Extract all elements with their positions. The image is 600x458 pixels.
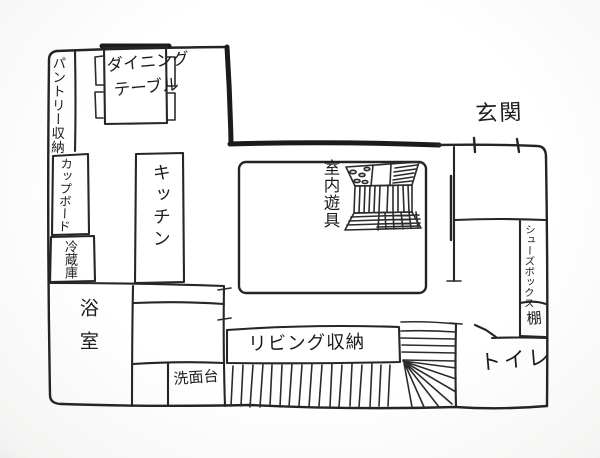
floorplan-linework — [0, 0, 600, 458]
toilet-door-swing-icon — [475, 325, 496, 337]
climb-hold — [350, 170, 356, 173]
label-bathroom: 浴室 — [76, 298, 98, 364]
washroom-walls — [132, 286, 231, 406]
label-washstand: 洗面台 — [173, 368, 219, 388]
play-mid-bars — [359, 185, 409, 213]
chair-right-2 — [167, 93, 175, 120]
washstand-top-line — [133, 362, 224, 364]
bathroom-right-wall — [132, 286, 133, 406]
label-indoor-play: 室内遊具 — [320, 159, 339, 229]
label-entrance: 玄関 — [475, 100, 524, 127]
wall-bottom — [62, 404, 547, 408]
entrance-door-tick-left — [474, 138, 475, 152]
washroom-counter-line — [134, 302, 224, 304]
label-cupboard: カップボード — [55, 157, 72, 232]
label-pantry: パントリー収納 — [47, 56, 64, 154]
entrance-door-tick-right — [517, 139, 519, 152]
wall-top-entrance — [436, 145, 546, 157]
genkan-floor-line — [455, 219, 546, 220]
floor-plan: パントリー収納 ダイニング テーブル カップボード 冷蔵庫 キッチン 室内遊具 … — [0, 0, 600, 458]
climb-hold — [354, 179, 360, 182]
stairs-turn-top — [401, 322, 456, 324]
climb-hold — [362, 181, 368, 184]
play-bottom-left-lines — [347, 216, 379, 225]
label-fridge: 冷蔵庫 — [61, 240, 76, 279]
stairs-winder-fan — [403, 361, 456, 407]
chair-left-1 — [95, 56, 103, 85]
stairs-lower-treads — [231, 364, 390, 407]
toilet-left-wall — [456, 324, 457, 407]
climb-hold — [359, 173, 365, 176]
play-top-dividers — [371, 164, 391, 186]
label-shoe-box: シューズボックス — [523, 224, 537, 308]
door-tick-washroom-bottom — [218, 318, 231, 320]
chair-left-2 — [95, 92, 103, 118]
play-equipment-drawing — [345, 162, 421, 230]
label-kitchen: キッチン — [149, 163, 170, 251]
climb-hold — [364, 167, 370, 170]
stairs-turn-treads — [401, 331, 456, 361]
washroom-right-wall — [224, 287, 225, 406]
wall-step — [227, 47, 231, 142]
play-net-grid — [377, 212, 420, 229]
label-dining-table: ダイニング テーブル — [106, 50, 192, 101]
toilet-top-wall — [492, 338, 546, 339]
door-tick-washroom-top — [218, 288, 231, 290]
label-living-storage: リビング収納 — [248, 332, 365, 355]
wall-dk-bottom — [49, 283, 224, 286]
pantry-divider — [75, 51, 76, 151]
label-shelf: 棚 — [526, 310, 542, 328]
wall-top-living — [230, 143, 439, 145]
